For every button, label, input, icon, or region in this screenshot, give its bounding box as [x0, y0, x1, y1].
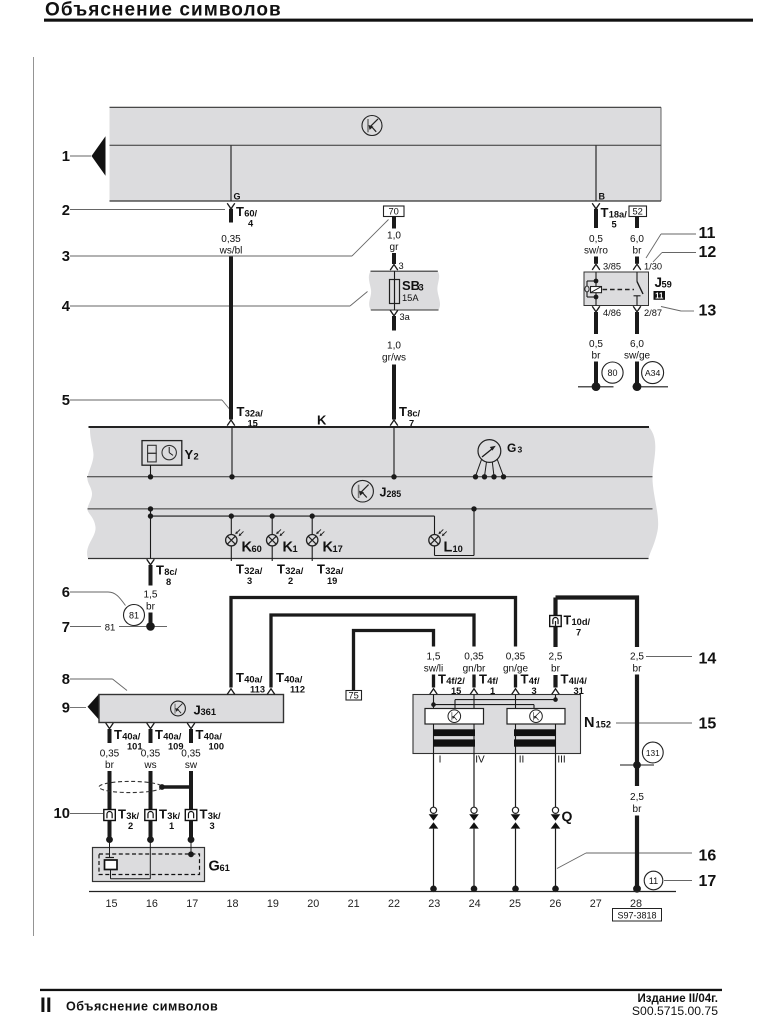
svg-text:80: 80 — [607, 368, 617, 378]
svg-text:T: T — [601, 205, 609, 220]
svg-text:T: T — [114, 727, 122, 742]
svg-text:100: 100 — [209, 742, 225, 752]
svg-text:T: T — [277, 562, 285, 577]
svg-text:1: 1 — [169, 821, 174, 831]
svg-text:52: 52 — [633, 206, 643, 216]
svg-text:0,5: 0,5 — [589, 339, 603, 350]
svg-text:A34: A34 — [645, 368, 661, 378]
svg-text:32a/: 32a/ — [325, 566, 344, 576]
svg-text:17: 17 — [333, 544, 343, 554]
svg-text:3/85: 3/85 — [603, 262, 621, 272]
svg-text:59: 59 — [662, 280, 672, 290]
svg-text:sw/ge: sw/ge — [624, 351, 651, 362]
svg-text:15A: 15A — [402, 293, 419, 303]
svg-text:81: 81 — [129, 611, 139, 621]
svg-text:J: J — [380, 486, 387, 500]
svg-text:18: 18 — [227, 898, 239, 910]
svg-text:3: 3 — [419, 283, 424, 293]
svg-text:T: T — [155, 727, 163, 742]
svg-text:16: 16 — [699, 848, 717, 865]
svg-text:2: 2 — [62, 203, 70, 219]
svg-text:2: 2 — [194, 452, 199, 462]
svg-text:T: T — [564, 614, 572, 628]
svg-text:9: 9 — [62, 701, 70, 717]
svg-text:75: 75 — [349, 690, 359, 700]
svg-text:14: 14 — [699, 651, 717, 668]
svg-text:4l/4/: 4l/4/ — [569, 676, 588, 686]
svg-text:18a/: 18a/ — [609, 210, 628, 220]
svg-text:4f/: 4f/ — [529, 676, 540, 686]
svg-text:II: II — [519, 755, 525, 766]
svg-text:2: 2 — [128, 821, 133, 831]
svg-text:7: 7 — [576, 628, 581, 638]
svg-text:10: 10 — [453, 544, 463, 554]
svg-text:1: 1 — [62, 149, 70, 165]
svg-text:T: T — [479, 672, 487, 687]
svg-text:T: T — [156, 563, 164, 578]
svg-text:2,5: 2,5 — [549, 652, 563, 663]
svg-text:G: G — [209, 859, 220, 875]
svg-text:br: br — [551, 664, 561, 675]
svg-text:361: 361 — [201, 707, 217, 717]
svg-text:11: 11 — [699, 225, 716, 242]
svg-text:2: 2 — [288, 576, 293, 586]
svg-text:T: T — [521, 672, 529, 687]
svg-text:17: 17 — [186, 898, 198, 910]
svg-text:sw/ro: sw/ro — [584, 246, 608, 257]
svg-text:0,35: 0,35 — [100, 749, 120, 760]
svg-text:T: T — [196, 727, 204, 742]
svg-text:Q: Q — [562, 808, 573, 824]
svg-text:6: 6 — [62, 585, 70, 601]
svg-text:26: 26 — [549, 898, 561, 910]
svg-text:0,35: 0,35 — [464, 652, 484, 663]
svg-text:br: br — [592, 351, 602, 362]
svg-text:br: br — [633, 804, 643, 815]
svg-text:27: 27 — [590, 898, 602, 910]
svg-text:8c/: 8c/ — [164, 567, 177, 577]
svg-text:3: 3 — [62, 249, 70, 265]
svg-text:K: K — [317, 413, 327, 428]
svg-text:131: 131 — [646, 748, 660, 758]
svg-text:19: 19 — [267, 898, 279, 910]
svg-text:gr: gr — [390, 242, 400, 253]
svg-text:15: 15 — [105, 898, 117, 910]
svg-text:4f/2/: 4f/2/ — [446, 676, 465, 686]
svg-text:T: T — [236, 204, 244, 219]
svg-text:60: 60 — [252, 544, 262, 554]
svg-text:22: 22 — [388, 898, 400, 910]
svg-text:40a/: 40a/ — [122, 732, 141, 742]
svg-text:24: 24 — [469, 898, 481, 910]
svg-text:25: 25 — [509, 898, 521, 910]
svg-text:81: 81 — [105, 623, 116, 634]
svg-text:B: B — [599, 192, 606, 202]
svg-text:1,5: 1,5 — [144, 590, 158, 601]
svg-text:20: 20 — [307, 898, 319, 910]
svg-text:S97-3818: S97-3818 — [617, 910, 656, 920]
svg-text:br: br — [105, 760, 115, 771]
svg-text:6,0: 6,0 — [630, 339, 644, 350]
svg-text:7: 7 — [62, 620, 70, 636]
svg-text:1: 1 — [293, 544, 298, 554]
svg-text:br: br — [633, 246, 643, 257]
svg-text:Объяснение символов: Объяснение символов — [45, 0, 282, 21]
svg-text:1,5: 1,5 — [427, 652, 441, 663]
svg-text:3k/: 3k/ — [208, 811, 221, 821]
svg-text:0,35: 0,35 — [141, 749, 161, 760]
svg-text:1,0: 1,0 — [387, 341, 401, 352]
svg-text:3k/: 3k/ — [167, 811, 180, 821]
svg-text:Объяснение символов: Объяснение символов — [66, 1000, 218, 1014]
svg-text:5: 5 — [612, 220, 617, 230]
svg-text:G: G — [234, 192, 241, 202]
svg-text:gr/ws: gr/ws — [382, 353, 406, 364]
svg-text:5: 5 — [62, 393, 70, 409]
svg-text:32a/: 32a/ — [285, 566, 304, 576]
svg-text:16: 16 — [146, 898, 158, 910]
svg-text:4: 4 — [62, 299, 71, 315]
svg-text:T: T — [237, 404, 245, 419]
svg-text:br: br — [633, 664, 643, 675]
svg-text:T: T — [159, 807, 167, 822]
svg-text:32a/: 32a/ — [244, 566, 263, 576]
svg-text:T: T — [317, 562, 325, 577]
svg-text:IV: IV — [475, 755, 485, 766]
svg-text:285: 285 — [387, 489, 402, 499]
svg-text:0,35: 0,35 — [181, 749, 201, 760]
svg-text:70: 70 — [389, 206, 399, 216]
svg-text:40a/: 40a/ — [284, 675, 303, 685]
svg-text:0,5: 0,5 — [589, 234, 603, 245]
svg-text:T: T — [561, 672, 569, 687]
svg-text:T: T — [236, 562, 244, 577]
svg-text:T: T — [236, 670, 244, 685]
svg-text:3: 3 — [518, 445, 523, 455]
svg-text:32a/: 32a/ — [245, 409, 264, 419]
svg-text:T: T — [200, 807, 208, 822]
svg-text:6,0: 6,0 — [630, 234, 644, 245]
svg-text:152: 152 — [596, 720, 612, 730]
svg-text:12: 12 — [699, 244, 717, 261]
svg-text:113: 113 — [250, 685, 265, 695]
svg-text:SB: SB — [402, 278, 420, 293]
svg-text:ws: ws — [143, 760, 156, 771]
svg-text:T: T — [399, 404, 407, 419]
svg-text:T: T — [438, 672, 446, 687]
svg-text:1,0: 1,0 — [387, 231, 401, 242]
svg-text:L: L — [444, 540, 453, 556]
svg-text:3k/: 3k/ — [126, 811, 139, 821]
svg-text:23: 23 — [428, 898, 440, 910]
svg-text:2,5: 2,5 — [630, 652, 644, 663]
svg-text:21: 21 — [348, 898, 360, 910]
svg-text:40a/: 40a/ — [204, 732, 223, 742]
svg-text:4/86: 4/86 — [603, 308, 621, 318]
svg-text:II: II — [40, 994, 52, 1017]
svg-text:4: 4 — [248, 219, 254, 229]
svg-text:III: III — [557, 755, 565, 766]
svg-text:40a/: 40a/ — [163, 732, 182, 742]
svg-text:3: 3 — [210, 821, 215, 831]
svg-text:8c/: 8c/ — [407, 409, 420, 419]
svg-text:3: 3 — [247, 576, 252, 586]
svg-text:0,35: 0,35 — [221, 234, 241, 245]
svg-text:10d/: 10d/ — [572, 617, 591, 627]
svg-text:11: 11 — [649, 876, 658, 886]
svg-text:8: 8 — [166, 577, 171, 587]
svg-text:T: T — [118, 807, 126, 822]
svg-text:br: br — [146, 602, 156, 613]
svg-text:15: 15 — [699, 716, 717, 733]
svg-text:4f/: 4f/ — [487, 676, 498, 686]
svg-text:T: T — [276, 670, 284, 685]
svg-text:8: 8 — [62, 672, 70, 688]
svg-text:40a/: 40a/ — [244, 675, 263, 685]
svg-text:ws/bl: ws/bl — [219, 246, 243, 257]
svg-text:13: 13 — [699, 303, 717, 320]
svg-text:61: 61 — [220, 863, 230, 873]
svg-text:11: 11 — [655, 291, 664, 300]
svg-text:G: G — [507, 441, 516, 455]
svg-text:0,35: 0,35 — [506, 652, 526, 663]
svg-text:112: 112 — [290, 685, 305, 695]
svg-text:2/87: 2/87 — [644, 308, 662, 318]
svg-text:60/: 60/ — [244, 209, 257, 219]
svg-text:3a: 3a — [400, 312, 411, 322]
svg-text:S00.5715.00.75: S00.5715.00.75 — [632, 1004, 718, 1018]
svg-text:17: 17 — [699, 873, 717, 890]
svg-text:N: N — [584, 715, 594, 731]
svg-text:1/30: 1/30 — [644, 262, 662, 272]
svg-text:2,5: 2,5 — [630, 792, 644, 803]
svg-text:sw: sw — [185, 760, 198, 771]
svg-text:10: 10 — [54, 806, 70, 822]
svg-text:3: 3 — [399, 261, 404, 271]
svg-text:19: 19 — [327, 576, 337, 586]
svg-text:I: I — [439, 755, 442, 766]
svg-text:Y: Y — [185, 447, 194, 462]
